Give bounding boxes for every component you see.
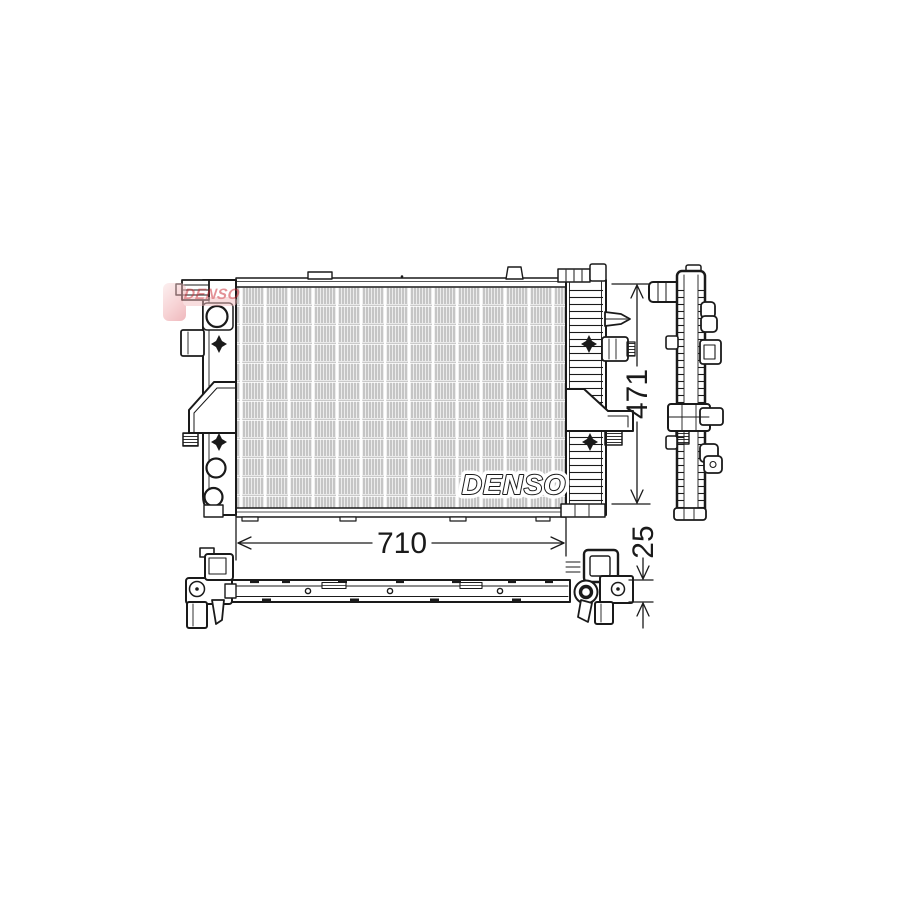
width-dimension: 710 — [236, 518, 566, 560]
front-view: DENSO DENSO — [176, 264, 635, 521]
width-dimension-label: 710 — [377, 527, 427, 560]
side-view — [649, 265, 723, 520]
bottom-right-bracket — [566, 550, 633, 624]
height-dimension-label: 471 — [621, 369, 654, 419]
bottom-view — [186, 548, 633, 628]
drawing-stage: DENSO DENSO — [0, 0, 900, 900]
depth-dimension-label: 25 — [627, 525, 660, 558]
svg-text:DENSO: DENSO — [462, 469, 567, 500]
bottom-left-bracket — [186, 548, 236, 628]
denso-watermark: DENSO DENSO — [462, 469, 567, 500]
radiator-technical-drawing: DENSO DENSO — [0, 0, 900, 900]
left-tank — [176, 280, 236, 517]
